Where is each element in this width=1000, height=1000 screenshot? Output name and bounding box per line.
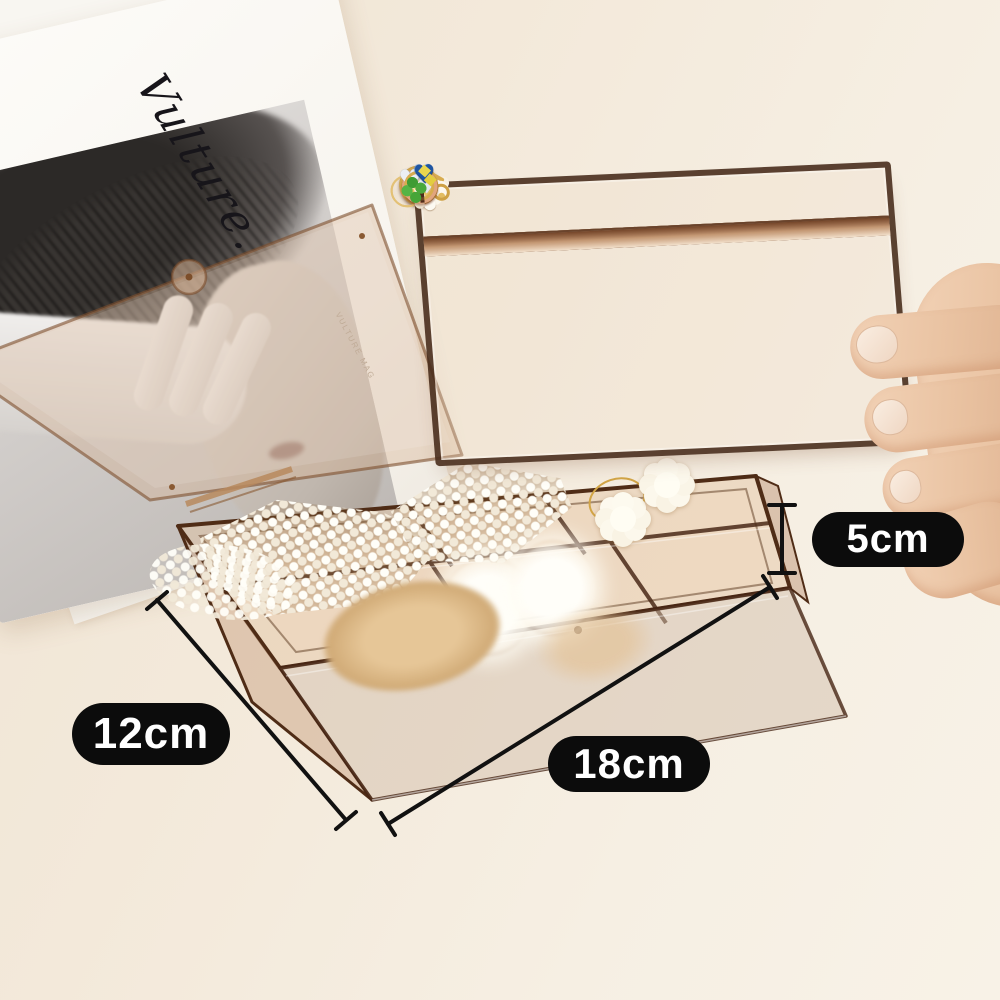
width-dimension-label: 12cm (72, 703, 230, 765)
dimension-lines (0, 0, 1000, 1000)
product-photo-jewelry-organizer: Vulture. VULTURE MAG (0, 0, 1000, 1000)
length-dimension-label: 18cm (548, 736, 710, 792)
height-dimension-label: 5cm (812, 512, 964, 567)
